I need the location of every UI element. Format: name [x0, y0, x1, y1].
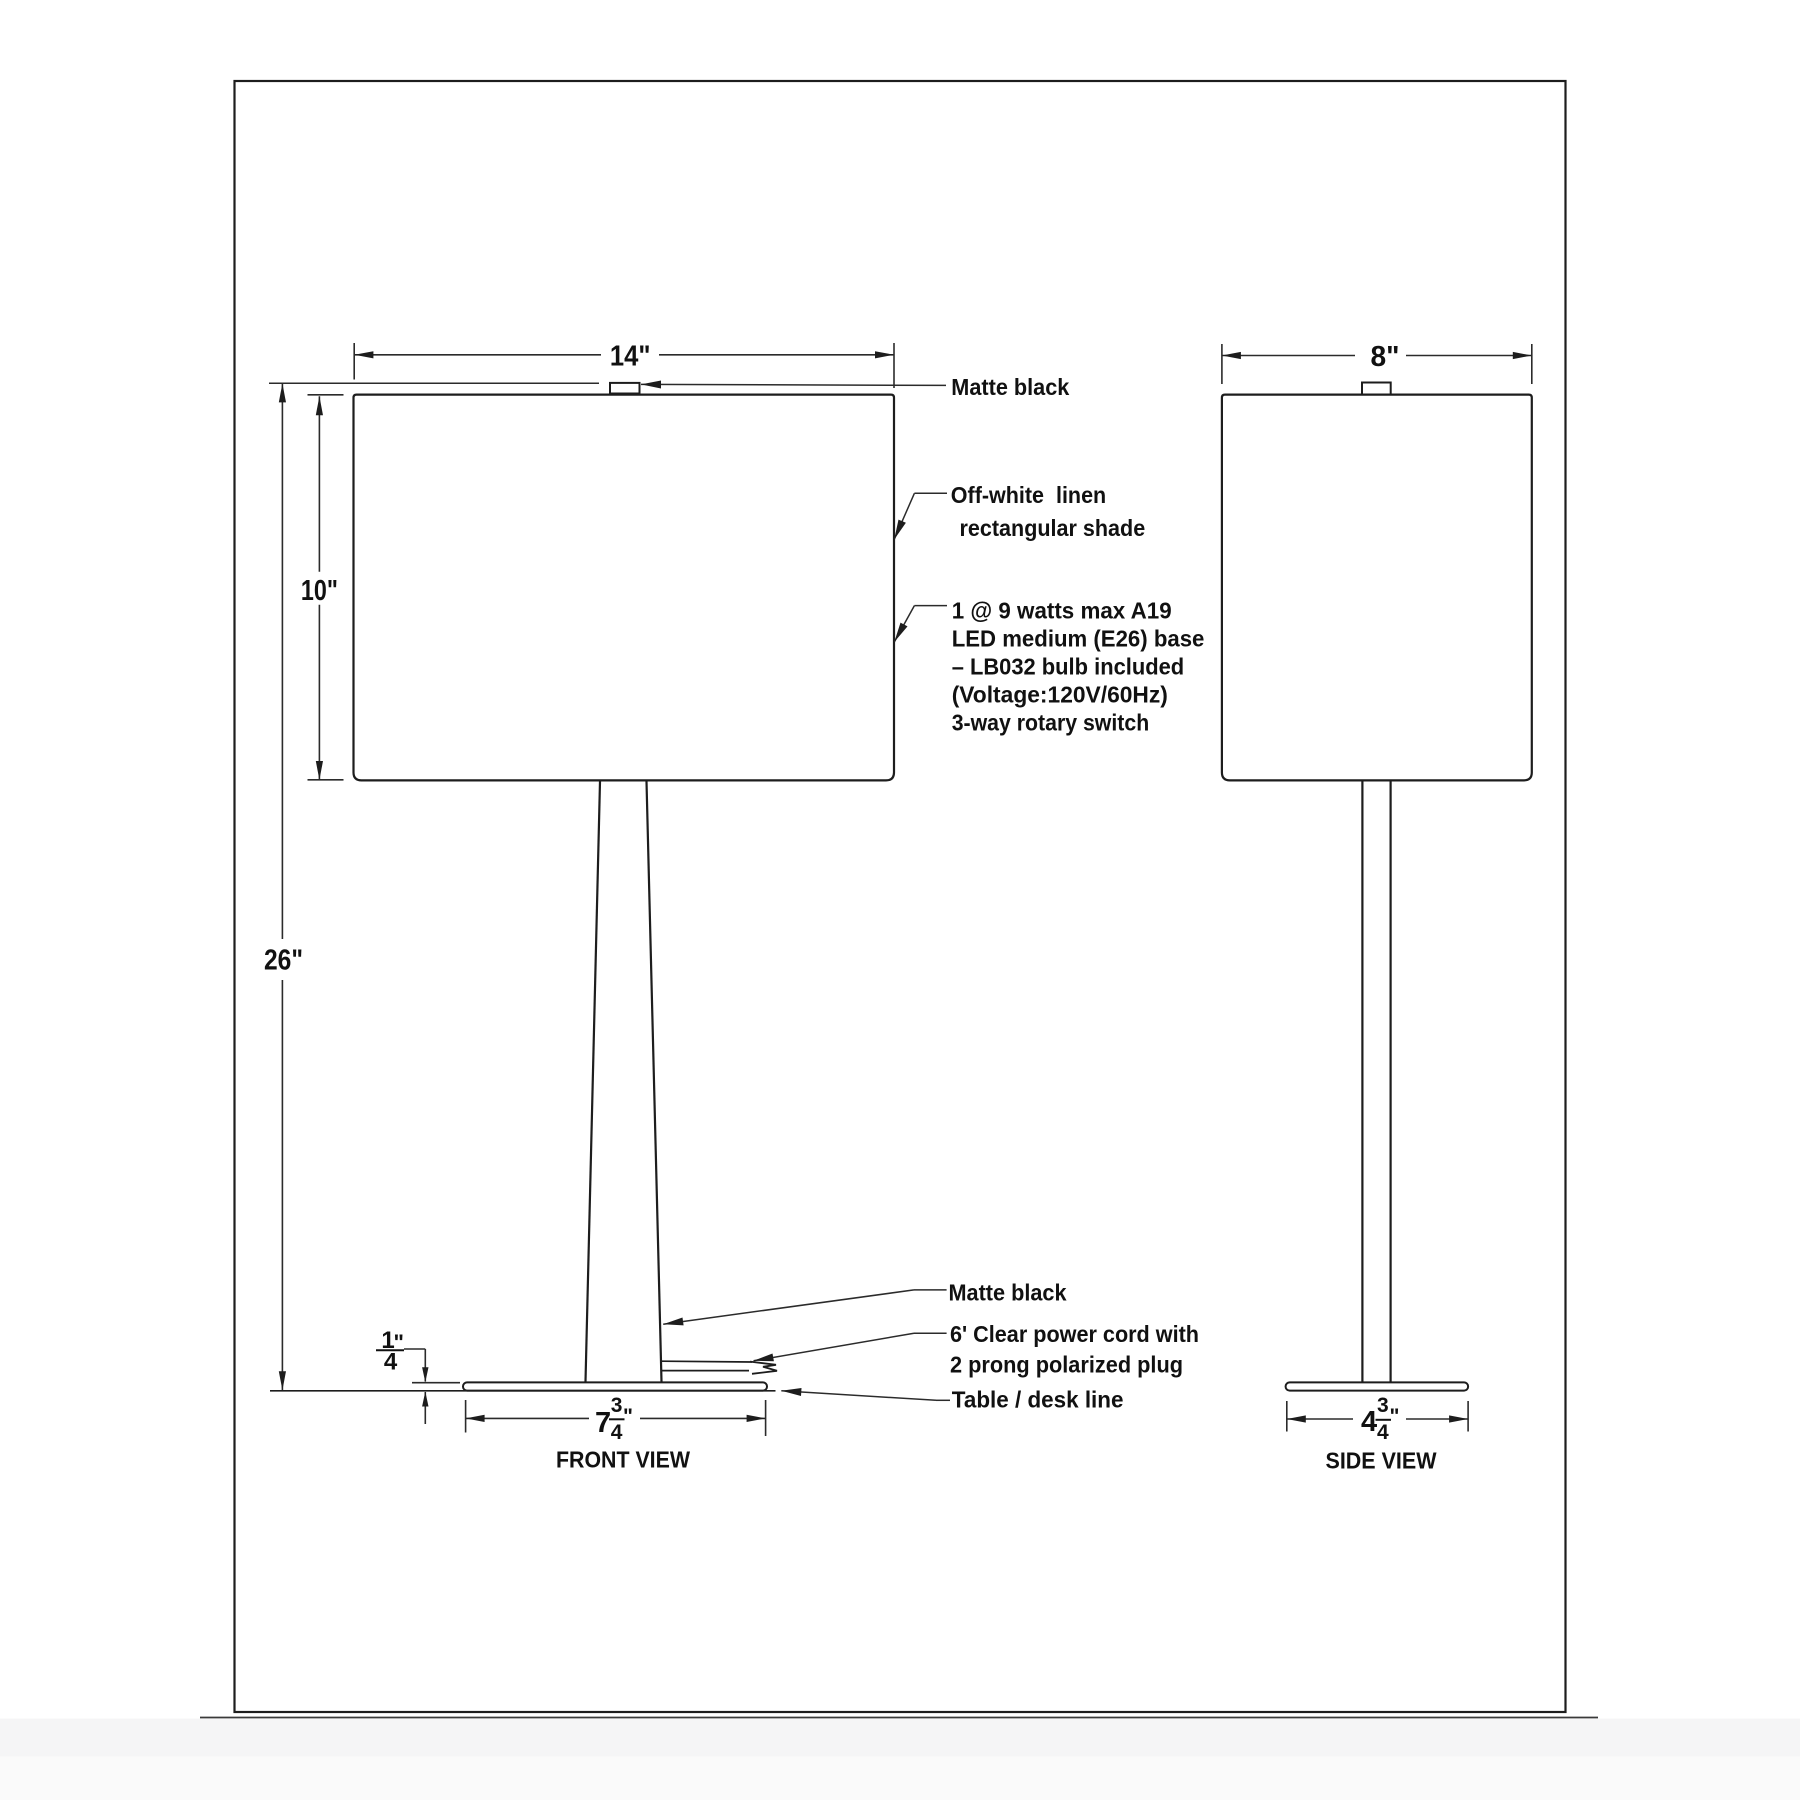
svg-text:– LB032 bulb included: – LB032 bulb included	[952, 654, 1184, 680]
svg-text:3-way rotary switch: 3-way rotary switch	[952, 710, 1149, 736]
svg-text:Table / desk line: Table / desk line	[952, 1387, 1124, 1413]
svg-text:4: 4	[611, 1421, 623, 1444]
svg-text:2 prong polarized plug: 2 prong polarized plug	[950, 1351, 1183, 1377]
svg-text:Matte black: Matte black	[949, 1279, 1067, 1305]
svg-text:": "	[623, 1405, 633, 1428]
svg-text:7: 7	[595, 1407, 611, 1439]
svg-text:8": 8"	[1371, 341, 1400, 373]
svg-text:4: 4	[1361, 1406, 1377, 1438]
svg-text:1 @ 9 watts max A19: 1 @ 9 watts max A19	[952, 598, 1172, 624]
svg-text:FRONT VIEW: FRONT VIEW	[556, 1446, 690, 1472]
svg-text:14": 14"	[610, 340, 651, 372]
svg-text:(Voltage:120V/60Hz): (Voltage:120V/60Hz)	[952, 682, 1168, 708]
svg-text:26": 26"	[264, 945, 303, 977]
svg-text:rectangular shade: rectangular shade	[960, 515, 1146, 541]
svg-text:3: 3	[1377, 1394, 1389, 1417]
svg-text:": "	[1390, 1405, 1400, 1428]
svg-text:4: 4	[1377, 1421, 1389, 1444]
svg-text:": "	[394, 1330, 404, 1355]
svg-text:LED medium (E26) base: LED medium (E26) base	[952, 626, 1205, 652]
svg-text:Off-white linen: Off-white linen	[951, 482, 1106, 508]
svg-text:3: 3	[611, 1394, 623, 1417]
svg-text:Matte black: Matte black	[951, 374, 1069, 400]
svg-text:10": 10"	[301, 575, 338, 607]
svg-text:6' Clear power cord with: 6' Clear power cord with	[950, 1321, 1199, 1347]
svg-text:SIDE VIEW: SIDE VIEW	[1326, 1448, 1437, 1474]
